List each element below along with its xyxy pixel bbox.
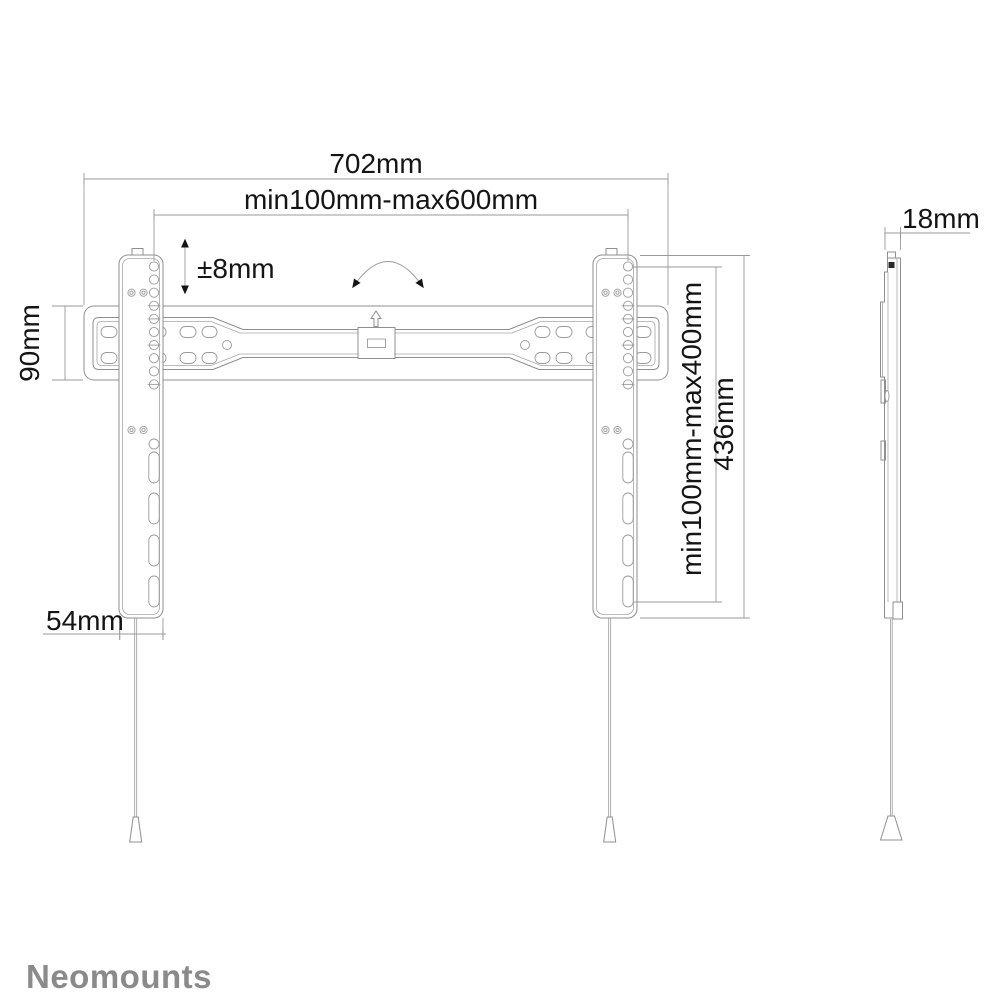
center-coupler [358,311,395,359]
wall-plate [84,306,668,380]
dim-height-adjust-label: ±8mm [197,253,275,284]
dim-rail-height-label: 436mm [708,377,739,470]
dim-total-width: 702mm [84,148,668,305]
dim-height-adjust: ±8mm [185,240,275,293]
left-rail [119,249,163,843]
side-view [881,252,903,840]
front-view [84,249,668,843]
up-arrow-icon [371,311,381,327]
right-rail [593,249,637,843]
left-pull-cord [130,618,142,842]
technical-drawing: 702mm min100mm-max600mm ±8mm 90mm 54mm m… [0,0,1004,1004]
dim-width-range-label: min100mm-max600mm [244,184,538,215]
dim-plate-height: 90mm [14,304,83,382]
right-pull-cord [604,618,616,842]
dim-depth-label: 18mm [902,203,980,234]
dogbone-bracket [93,311,659,370]
dim-total-width-label: 702mm [329,148,422,179]
dim-height-range-label: min100mm-max400mm [676,282,707,576]
dim-width-range: min100mm-max600mm [154,184,628,261]
dim-plate-height-label: 90mm [14,304,45,382]
brand-logo: Neomounts [26,958,212,995]
dim-rail-width-label: 54mm [46,605,124,636]
tilt-arc-arrow [353,262,423,288]
side-pull-cord [881,619,903,840]
dim-depth: 18mm [885,203,980,250]
